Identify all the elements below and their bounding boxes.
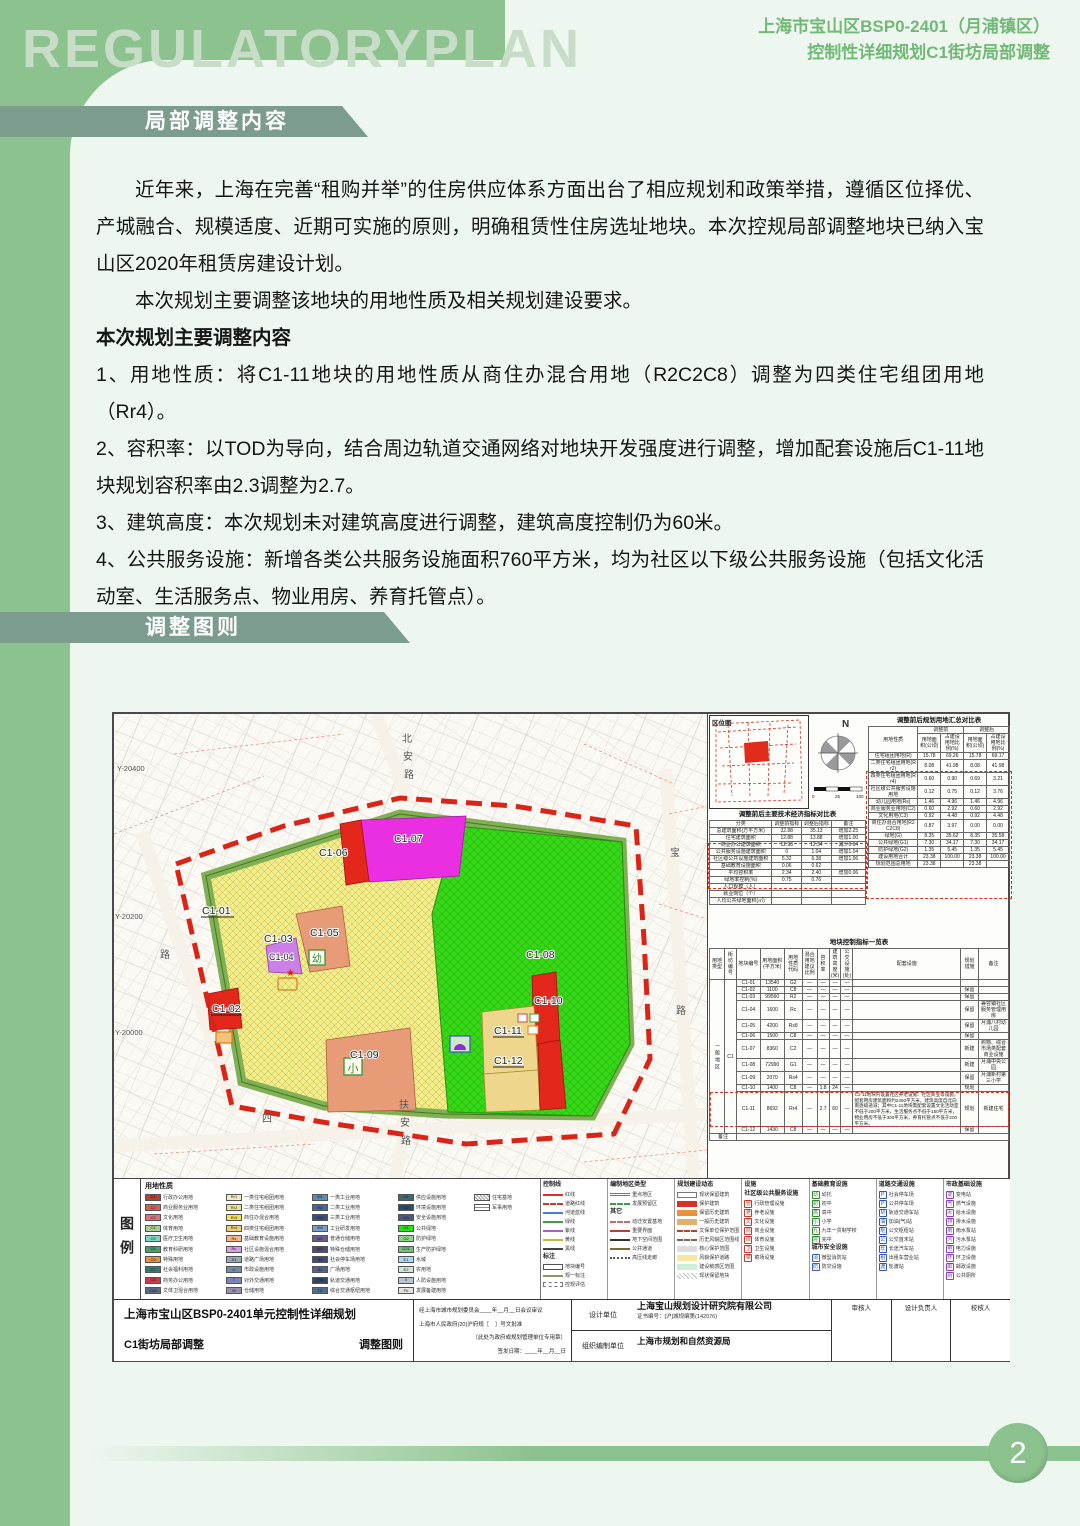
legend-item: 幼幼托 [812, 1190, 874, 1199]
legend-item: 邮邮政设施 [946, 1262, 1008, 1271]
legend-item: 管行政管理设施 [744, 1199, 806, 1208]
park-gate-icon [450, 1036, 470, 1052]
legend-item: M轨道交通车站 [879, 1208, 941, 1217]
legend-landuse-item: G2防护绿地 [398, 1234, 470, 1244]
title-block-approval: 经上海市城市规划委员会____年__月__日会议审议 上海市人民政府(20)沪府… [414, 1300, 572, 1361]
svg-text:100: 100 [856, 794, 864, 799]
tech-indicator-table: 调整前后主要技术经济指标对比表 分类调整前指标调整后指标备注总建筑面积(万平方米… [709, 810, 866, 905]
legend-item: 租出租车营业站 [879, 1253, 941, 1262]
data-panel: 区位图 N [707, 714, 1011, 1178]
legend-item: 气燃气设施 [946, 1199, 1008, 1208]
legend-landuse-item: Rs基础教育设施用地 [226, 1234, 308, 1244]
legend-item: 水给水设施 [946, 1208, 1008, 1217]
plan-figure: 幼 小 ★ C1-01 C1-02 C1-03 C1-04 C1-05 C1-0… [112, 712, 1010, 1362]
parcel-label: C1-04 [269, 952, 294, 962]
scale-bar: 0 25 100 [812, 787, 864, 799]
location-highlight [744, 741, 769, 763]
legend-item: 绿线 [543, 1217, 605, 1226]
legend-item: 道路红线 [543, 1199, 605, 1208]
legend-column: 编制地区类型重点地区发展预留区其它动迁安置基地重要界面地下空间范围公共通道高压线… [608, 1179, 675, 1300]
road-char-right2: 路 [676, 1004, 686, 1017]
legend-column: 道路交通设施P社会停车场P公共停车场M轨道交通车站油加油(气)站枢公交枢纽站公公… [877, 1179, 944, 1300]
legend-item: 现状保留地块 [677, 1271, 739, 1280]
parcel-control-table: 地块控制指标一览表 用地类型街坊编号地块编号用地面积(平方米)用地性质代码混合用… [709, 938, 1009, 1141]
legend-item: 动迁安置基地 [610, 1217, 672, 1226]
legend-column: 规划建设动态现状保留建筑保护建筑保留历史建筑一般历史建筑文保单位保护范围历史风貌… [675, 1179, 742, 1300]
legend-landuse-item: E2农用地 [398, 1265, 470, 1275]
logo-text: REGULATORYPLAN [22, 18, 582, 80]
svg-text:路: 路 [404, 768, 414, 781]
legend-landuse-item: 军事用地 [474, 1202, 536, 1212]
legend-landuse-item: M4工业研发用地 [312, 1223, 394, 1233]
table-c: 用地类型街坊编号地块编号用地面积(平方米)用地性质代码混合用地建议比例容积率建筑… [709, 948, 1009, 1141]
legend-item: 消微型消防站 [812, 1253, 874, 1262]
legend-item: 发展预留区 [610, 1199, 672, 1208]
legend-item: 卫卫生设施 [744, 1244, 806, 1253]
coord-label: Y-20000 [115, 1028, 143, 1037]
legend-column: 基础教育设施幼幼托初初中高高中小小学九九年一贯制学校完完中城市安全设施消微型消防… [810, 1179, 877, 1300]
legend-column: 设施社区级公共服务设施管行政管理设施老养老设施文文化设施商商业设施体体育设施卫卫… [742, 1179, 809, 1300]
legend-landuse-item: Rc社区设施混合用地 [226, 1244, 308, 1254]
legend-item: 污污水泵站 [946, 1235, 1008, 1244]
table-a-host: 用地性质调整前调整后用地面积(公顷)占建设用地比例(%)用地面积(公顷)占建设用… [868, 726, 1010, 868]
parcel-label: C1-08 [526, 949, 555, 961]
title-block-project: 上海市宝山区BSP0-2401单元控制性详细规划 C1街坊局部调整 调整图则 [114, 1300, 414, 1361]
legend-landuse-item: T4轨道交通用地 [312, 1275, 394, 1285]
intro-paragraph-2: 本次规划主要调整该地块的用地性质及相关规划建设要求。 [96, 283, 984, 320]
location-map-title: 区位图 [712, 717, 732, 727]
legend-landuse-item: W仓储用地 [226, 1286, 308, 1296]
legend-landuse-item: U1供应设施用地 [398, 1192, 470, 1202]
legend-item: 保护建筑 [677, 1199, 739, 1208]
parcel-label: C1-12 [494, 1055, 523, 1067]
parcel-label: C1-01 [202, 905, 231, 917]
legend-item: 黄线 [543, 1235, 605, 1244]
legend-landuse-item: E1水域 [398, 1254, 470, 1264]
parcel-label: C1-03 [264, 933, 293, 945]
legend-item: 重点地区 [610, 1190, 672, 1199]
adjustment-item-1: 1、用地性质：将C1-11地块的用地性质从商住办混合用地（R2C2C8）调整为四… [96, 357, 984, 431]
legend-landuse-item: C65文体卫混合用地 [145, 1286, 222, 1296]
legend-item: 现状保留建筑 [677, 1190, 739, 1199]
coord-label: Y-20200 [115, 912, 143, 921]
landuse-summary-table: 调整前后规划用地汇总对比表 用地性质调整前调整后用地面积(公顷)占建设用地比例(… [868, 716, 1010, 868]
legend-landuse-item: C8商务办公用地 [145, 1275, 222, 1285]
legend-landuse-item: Rr1一类住宅组团用地 [226, 1192, 308, 1202]
parcel-label: C1-10 [534, 995, 563, 1007]
legend-item: 雨雨水泵站 [946, 1226, 1008, 1235]
legend-landuse-item: G1公共绿地 [398, 1223, 470, 1233]
legend-landuse-item: M1一类工业用地 [312, 1192, 394, 1202]
legend-item: 厕公共厕所 [946, 1271, 1008, 1280]
legend-item: 公公交首末站 [879, 1235, 941, 1244]
svg-text:安: 安 [400, 1116, 410, 1129]
title-block-signers: 审核人 设计负责人 校核人 [832, 1300, 1010, 1361]
parcel-c1-07 [361, 816, 466, 882]
parcel-label: C1-05 [310, 927, 339, 939]
adjustment-item-3: 3、建筑高度：本次规划未对建筑高度进行调整，建筑高度控制仍为60米。 [96, 505, 984, 542]
svg-text:25: 25 [835, 794, 841, 799]
legend-landuse-item: W2特殊仓储用地 [312, 1244, 394, 1254]
table-b-host: 分类调整前指标调整后指标备注总建筑面积(万平方米)32.8835.13增加2.2… [709, 820, 866, 905]
table-b: 分类调整前指标调整后指标备注总建筑面积(万平方米)32.8835.13增加2.2… [709, 820, 866, 905]
legend-item: P公共停车场 [879, 1199, 941, 1208]
section-banner-local-adjustment: 局部调整内容 [0, 106, 368, 137]
legend-item: 电电力设施 [946, 1244, 1008, 1253]
legend-landuse-item: U3安全设施用地 [398, 1213, 470, 1223]
legend-columns: 控制线红线道路红线河道蓝线绿线紫线黄线黑线标注地块编号规一标注控规评估编制地区类… [541, 1179, 1010, 1300]
legend-landuse-item: S1道路广场用地 [226, 1254, 308, 1264]
parcel-label: C1-06 [319, 847, 348, 859]
footer-bar [90, 1446, 1080, 1461]
road-char-left: 路 [160, 948, 170, 961]
legend-landuse-item: C3文化用地 [145, 1213, 222, 1223]
sheet-name: 调整图则 [359, 1336, 403, 1352]
legend-item: 文文化设施 [744, 1217, 806, 1226]
legend-item: 高高中 [812, 1208, 874, 1217]
legend-landuse-item: S2广场用地 [312, 1265, 394, 1275]
legend-item: 风貌保护道路 [677, 1253, 739, 1262]
compass-area: N 0 25 100 [808, 715, 868, 807]
adjustments-heading: 本次规划主要调整内容 [96, 320, 984, 357]
document-title-line2: 控制性详细规划C1街坊局部调整 [758, 40, 1050, 66]
left-green-strip [0, 0, 70, 1526]
page-number-badge: 2 [988, 1423, 1048, 1483]
svg-text:扶: 扶 [399, 1098, 409, 1111]
legend-landuse-item: Rr3商住办混合用地 [226, 1213, 308, 1223]
legend-item: 初初中 [812, 1199, 874, 1208]
legend-landuse-item: S4社会停车场用地 [312, 1254, 394, 1264]
parcel-c1-12 [484, 1070, 540, 1112]
legend-landuse-item: 住宅基地 [474, 1192, 536, 1202]
legend-item: 高压线走廊 [610, 1253, 672, 1262]
legend: 图例 用地性质 C1行政办公用地C2商业服务业用地C3文化用地C4体育用地C5医… [114, 1178, 1010, 1300]
legend-item: 九九年一贯制学校 [812, 1226, 874, 1235]
legend-landuse-item: M3三类工业用地 [312, 1213, 394, 1223]
legend-landuse-item: C5医疗卫生用地 [145, 1234, 222, 1244]
title-block-design: 设计单位 上海宝山规划设计研究院有限公司 证书编号：[沪]城规编第(142076… [572, 1300, 832, 1361]
kindergarten-icon: 幼 [309, 950, 325, 965]
adjustment-item-2: 2、容积率：以TOD为导向，结合周边轨道交通网络对地块开发强度进行调整，增加配套… [96, 431, 984, 505]
legend-item: 体体育设施 [744, 1235, 806, 1244]
plan-map: 幼 小 ★ C1-01 C1-02 C1-03 C1-04 C1-05 C1-0… [114, 714, 707, 1178]
legend-landuse-item: C6教育科研用地 [145, 1244, 222, 1254]
legend-item: 渡轮渡站 [879, 1262, 941, 1271]
legend-landuse-grid: C1行政办公用地C2商业服务业用地C3文化用地C4体育用地C5医疗卫生用地C6教… [145, 1192, 536, 1296]
legend-landuse-item: T对外交通用地 [226, 1275, 308, 1285]
adjustment-item-4: 4、公共服务设施：新增各类公共服务设施面积760平方米，均为社区以下级公共服务设… [96, 542, 984, 616]
legend-item: 文保单位保护范围 [677, 1226, 739, 1235]
legend-item: 防防灾设施 [812, 1262, 874, 1271]
svg-text:路: 路 [401, 1134, 411, 1147]
legend-column: 市政基础设施变变电站气燃气设施水给水设施排排水设施雨雨水泵站污污水泵站电电力设施… [944, 1179, 1010, 1300]
location-minimap [710, 716, 806, 806]
legend-item: 菜菜场设施 [744, 1253, 806, 1262]
legend-item: 长长途汽车站 [879, 1244, 941, 1253]
legend-landuse-item: G21生产防护绿地 [398, 1244, 470, 1254]
title-block: 上海市宝山区BSP0-2401单元控制性详细规划 C1街坊局部调整 调整图则 经… [114, 1299, 1010, 1361]
parcel-label: C1-07 [394, 833, 423, 845]
legend-landuse-item: W1普通仓储用地 [312, 1234, 394, 1244]
legend-item: 河道蓝线 [543, 1208, 605, 1217]
legend-item: 红线 [543, 1190, 605, 1199]
legend-landuse-item: C7社会福利用地 [145, 1265, 222, 1275]
legend-item: 保留历史建筑 [677, 1208, 739, 1217]
legend-item: 重要界面 [610, 1226, 672, 1235]
legend-item: 枢公交枢纽站 [879, 1226, 941, 1235]
road-char-right: 宝 [670, 846, 680, 859]
table-c-host: 用地类型街坊编号地块编号用地面积(平方米)用地性质代码混合用地建议比例容积率建筑… [709, 948, 1009, 1141]
legend-landuse-item: Rr4四类住宅组团用地 [226, 1223, 308, 1233]
legend-landuse-item: T5综合交通枢纽用地 [312, 1286, 394, 1296]
legend-landuse-item: U市政设施用地 [226, 1265, 308, 1275]
legend-item: 完完中 [812, 1235, 874, 1244]
star-icon: ★ [286, 968, 295, 979]
document-title-line1: 上海市宝山区BSP0-2401（月浦镇区） [758, 14, 1050, 40]
legend-item: P社会停车场 [879, 1190, 941, 1199]
legend-item: 小小学 [812, 1217, 874, 1226]
legend-item: 公共通道 [610, 1244, 672, 1253]
intro-paragraph-1: 近年来，上海在完善“租购并举”的住房供应体系方面出台了相应规划和政策举措，遵循区… [96, 172, 984, 283]
svg-text:北: 北 [402, 733, 412, 745]
parcel-label: C1-09 [350, 1049, 379, 1061]
table-a: 用地性质调整前调整后用地面积(公顷)占建设用地比例(%)用地面积(公顷)占建设用… [868, 726, 1010, 868]
facility-box-icon-2 [216, 1032, 232, 1043]
legend-item: 地块编号 [543, 1262, 605, 1271]
document-title: 上海市宝山区BSP0-2401（月浦镇区） 控制性详细规划C1街坊局部调整 [758, 14, 1050, 66]
legend-item: 规一标注 [543, 1271, 605, 1280]
legend-item: 环环卫设施 [946, 1253, 1008, 1262]
legend-landuse-item: U2环境设施用地 [398, 1202, 470, 1212]
legend-landuse-item: C4体育用地 [145, 1223, 222, 1233]
svg-text:安: 安 [403, 750, 413, 763]
legend-item: 排排水设施 [946, 1217, 1008, 1226]
legend-landuse-item: C1行政办公用地 [145, 1192, 222, 1202]
legend-item: 地下空间范围 [610, 1235, 672, 1244]
body-content: 近年来，上海在完善“租购并举”的住房供应体系方面出台了相应规划和政策举措，遵循区… [96, 172, 984, 616]
svg-text:幼: 幼 [312, 952, 322, 965]
legend-item: 核心保护范围 [677, 1244, 739, 1253]
north-label: N [842, 719, 849, 730]
parcel-label: C1-11 [494, 1025, 522, 1037]
legend-item: 商商业设施 [744, 1226, 806, 1235]
road-char-left2: 四 [262, 1114, 272, 1125]
legend-item: 变变电站 [946, 1190, 1008, 1199]
legend-item: 老养老设施 [744, 1208, 806, 1217]
svg-text:0: 0 [812, 794, 815, 799]
legend-landuse-item: C2商业服务业用地 [145, 1202, 222, 1212]
svg-text:小: 小 [348, 1062, 359, 1075]
parcel-label: C1-02 [212, 1003, 241, 1015]
legend-item: 黑线 [543, 1244, 605, 1253]
legend-landuse-item: X人防设施用地 [398, 1275, 470, 1285]
legend-item: 历史风貌区范围线 [677, 1235, 739, 1244]
legend-item: 油加油(气)站 [879, 1217, 941, 1226]
legend-landuse-item: M2二类工业用地 [312, 1202, 394, 1212]
coord-label: Y-20400 [117, 764, 145, 773]
section-banner-plan-sheet: 调整图则 [0, 612, 410, 643]
legend-item: 控规评估 [543, 1280, 605, 1289]
legend-landuse-item: Fb发展备建用地 [398, 1286, 470, 1296]
legend-landuse: 用地性质 C1行政办公用地C2商业服务业用地C3文化用地C4体育用地C5医疗卫生… [141, 1179, 541, 1300]
legend-landuse-item: Rr2二类住宅组团用地 [226, 1202, 308, 1212]
legend-item: 紫线 [543, 1226, 605, 1235]
legend-item: 建设敏感区范围 [677, 1262, 739, 1271]
legend-column: 控制线红线道路红线河道蓝线绿线紫线黄线黑线标注地块编号规一标注控规评估 [541, 1179, 608, 1300]
legend-landuse-item: C9特殊用地 [145, 1254, 222, 1264]
legend-item: 一般历史建筑 [677, 1217, 739, 1226]
legend-caption: 图例 [114, 1179, 141, 1300]
location-map: 区位图 [709, 715, 809, 809]
